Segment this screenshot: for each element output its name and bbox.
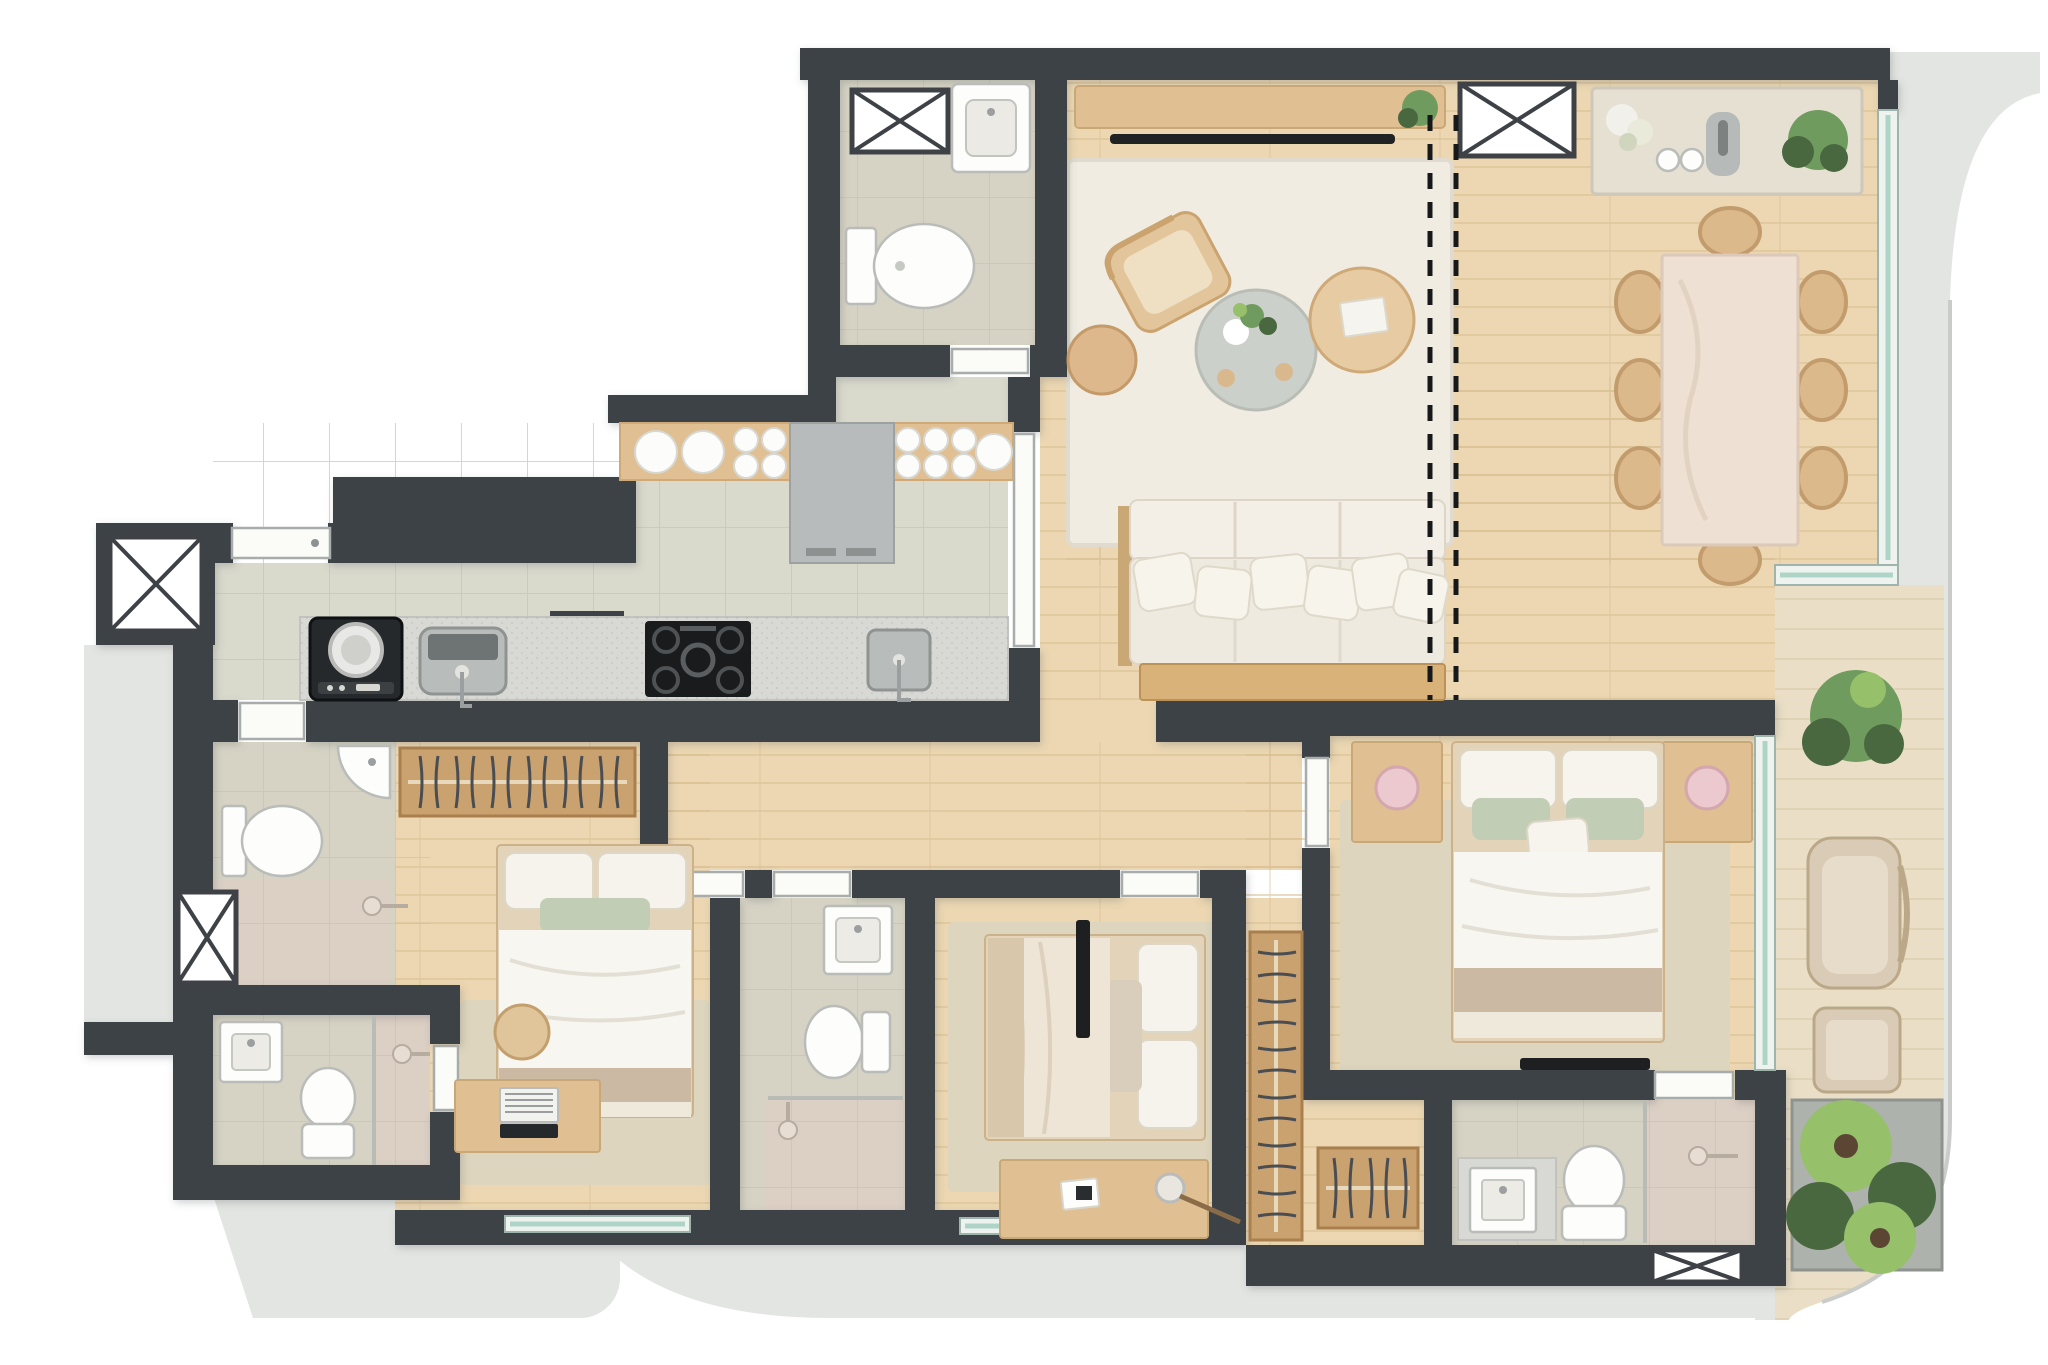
wall-lavabo-west	[808, 48, 840, 377]
mbath-toilet-bowl	[1564, 1146, 1624, 1214]
bath1-faucet	[247, 1039, 255, 1047]
cup-2	[1217, 369, 1235, 387]
washing-machine	[310, 618, 402, 700]
sofa-console	[1140, 664, 1445, 700]
coffee-table-wood	[1310, 268, 1414, 372]
wall-kitchen-north	[608, 395, 836, 423]
cup-1	[1275, 363, 1293, 381]
wall-west	[173, 563, 213, 1200]
wall-joint-hall	[808, 377, 836, 423]
lavabo-toilet-tank	[846, 228, 876, 304]
bedroom2-door	[1122, 872, 1198, 896]
closet-short-rack	[1318, 1148, 1418, 1228]
duct-corridor	[110, 537, 202, 631]
wall-lavabo-south-a	[808, 345, 950, 377]
floor-plan-svg	[0, 0, 2048, 1365]
floor-pass	[1040, 700, 1156, 742]
bath1-toilet-tank	[302, 1124, 354, 1158]
service-toilet-bowl	[242, 806, 322, 876]
wall-hall-s-b	[745, 870, 772, 898]
lavabo-door	[952, 349, 1028, 373]
lamp-left	[1376, 767, 1418, 809]
wall-living-south	[1156, 700, 1330, 742]
wall-master-north	[1330, 700, 1775, 736]
sideboard-vase-2	[1681, 149, 1703, 171]
bath2-toilet-bowl	[805, 1006, 863, 1078]
service-bath-door	[240, 703, 304, 739]
master-blanket	[1454, 968, 1662, 1012]
lavabo-faucet	[987, 108, 995, 116]
bath1-shower-head	[393, 1045, 411, 1063]
laundry-sink	[420, 628, 506, 706]
wall-kitchen-south-b	[306, 700, 1008, 742]
kitchen-pocket-door	[1014, 434, 1034, 646]
wall-master-south-b	[1735, 1070, 1786, 1100]
wall-corridor-stub	[84, 1022, 173, 1055]
master-duvet	[1454, 852, 1662, 968]
bed1-pillow-accent	[540, 898, 650, 932]
bath1-toilet-bowl	[301, 1068, 355, 1128]
entry-door-handle	[311, 539, 319, 547]
tv-soundbar	[1110, 134, 1395, 144]
wall-bed1-east	[710, 898, 740, 1210]
terrace-planter	[1786, 1100, 1942, 1274]
duct-living	[1460, 84, 1574, 156]
sideboard	[1592, 88, 1862, 194]
wall-kitchen-south-a	[213, 700, 238, 742]
bed2-blanket-fold	[988, 938, 1024, 1137]
bedroom1-laptop	[500, 1088, 558, 1138]
ottoman	[1068, 326, 1136, 394]
wall-bath2-east	[905, 898, 935, 1210]
wall-master-west-a	[1302, 736, 1330, 758]
fridge	[790, 423, 894, 563]
duct-master-bath	[1652, 1250, 1742, 1282]
coffee-table-stone	[1196, 290, 1316, 410]
bedroom2	[985, 920, 1240, 1238]
sideboard-bottle	[1718, 120, 1728, 156]
bedroom1-chair	[495, 1005, 549, 1059]
terrace-armchair	[1808, 838, 1907, 988]
mbath-shower-head	[1689, 1147, 1707, 1165]
master-door	[1306, 758, 1328, 846]
bed2-pillow-accent	[1106, 980, 1142, 1092]
master-bath-door	[1655, 1072, 1733, 1098]
lamp-right	[1686, 767, 1728, 809]
wall-hall-s-c	[852, 870, 1120, 898]
wall-bath1-east-a	[430, 1015, 460, 1044]
kitchen-sink	[868, 630, 930, 700]
floor-kitchen-ne	[836, 377, 1008, 423]
common-corridor-floor	[84, 645, 173, 1022]
closet-long-rack	[1250, 932, 1302, 1240]
master-tv	[1520, 1058, 1650, 1070]
wall-bath1-north	[173, 985, 460, 1015]
mbath-toilet-tank	[1562, 1206, 1626, 1240]
cooktop	[645, 621, 751, 697]
bath2-faucet	[854, 925, 862, 933]
fridge-handle-2	[846, 548, 876, 556]
lavabo-toilet-button	[895, 261, 905, 271]
fridge-handle-1	[806, 548, 836, 556]
lavabo-toilet-bowl	[874, 224, 974, 308]
floor-plan-stage	[0, 0, 2048, 1365]
bedroom2-inkwell	[1076, 1186, 1092, 1200]
mbath-faucet	[1499, 1186, 1507, 1194]
media-console	[1075, 86, 1445, 128]
wall-stub-ne	[1878, 80, 1898, 110]
bedroom2-tv	[1076, 920, 1090, 1038]
cooktop-controls	[680, 626, 716, 631]
sideboard-vase-1	[1657, 149, 1679, 171]
wall-bath1-south	[173, 1165, 460, 1200]
wall-top	[800, 48, 1890, 80]
dining-table	[1662, 255, 1798, 545]
bed2-pillow-1	[1138, 944, 1198, 1032]
terrace-pouf-top	[1826, 1020, 1888, 1080]
service-shower-head	[363, 897, 381, 915]
sofa-back	[1130, 500, 1445, 560]
wall-mbath-west	[1424, 1100, 1452, 1245]
wall-lavabo-east	[1035, 48, 1067, 377]
wall-master-south-a	[1302, 1070, 1655, 1100]
bed2-pillow-2	[1138, 1040, 1198, 1128]
bedroom1-bed	[497, 845, 693, 1117]
wall-master-west-b	[1302, 848, 1330, 1070]
bathroom2-door	[774, 872, 850, 896]
corner-basin-faucet	[368, 758, 376, 766]
master-foot-throw	[1454, 1012, 1662, 1038]
duct-service	[178, 892, 236, 983]
bedroom1-wardrobe	[400, 748, 635, 816]
wall-lavabo-south-b	[1030, 345, 1067, 377]
sofa	[1118, 500, 1450, 700]
wall-entry-band	[333, 477, 636, 563]
wall-kitchen-east-b	[1008, 648, 1040, 742]
bath2-shower-head	[779, 1121, 797, 1139]
wall-entry-a	[213, 523, 233, 563]
duct-lavabo	[852, 90, 948, 152]
bath2-toilet-tank	[862, 1012, 890, 1072]
wall-bed2-east	[1212, 870, 1246, 1245]
book	[1340, 297, 1388, 337]
